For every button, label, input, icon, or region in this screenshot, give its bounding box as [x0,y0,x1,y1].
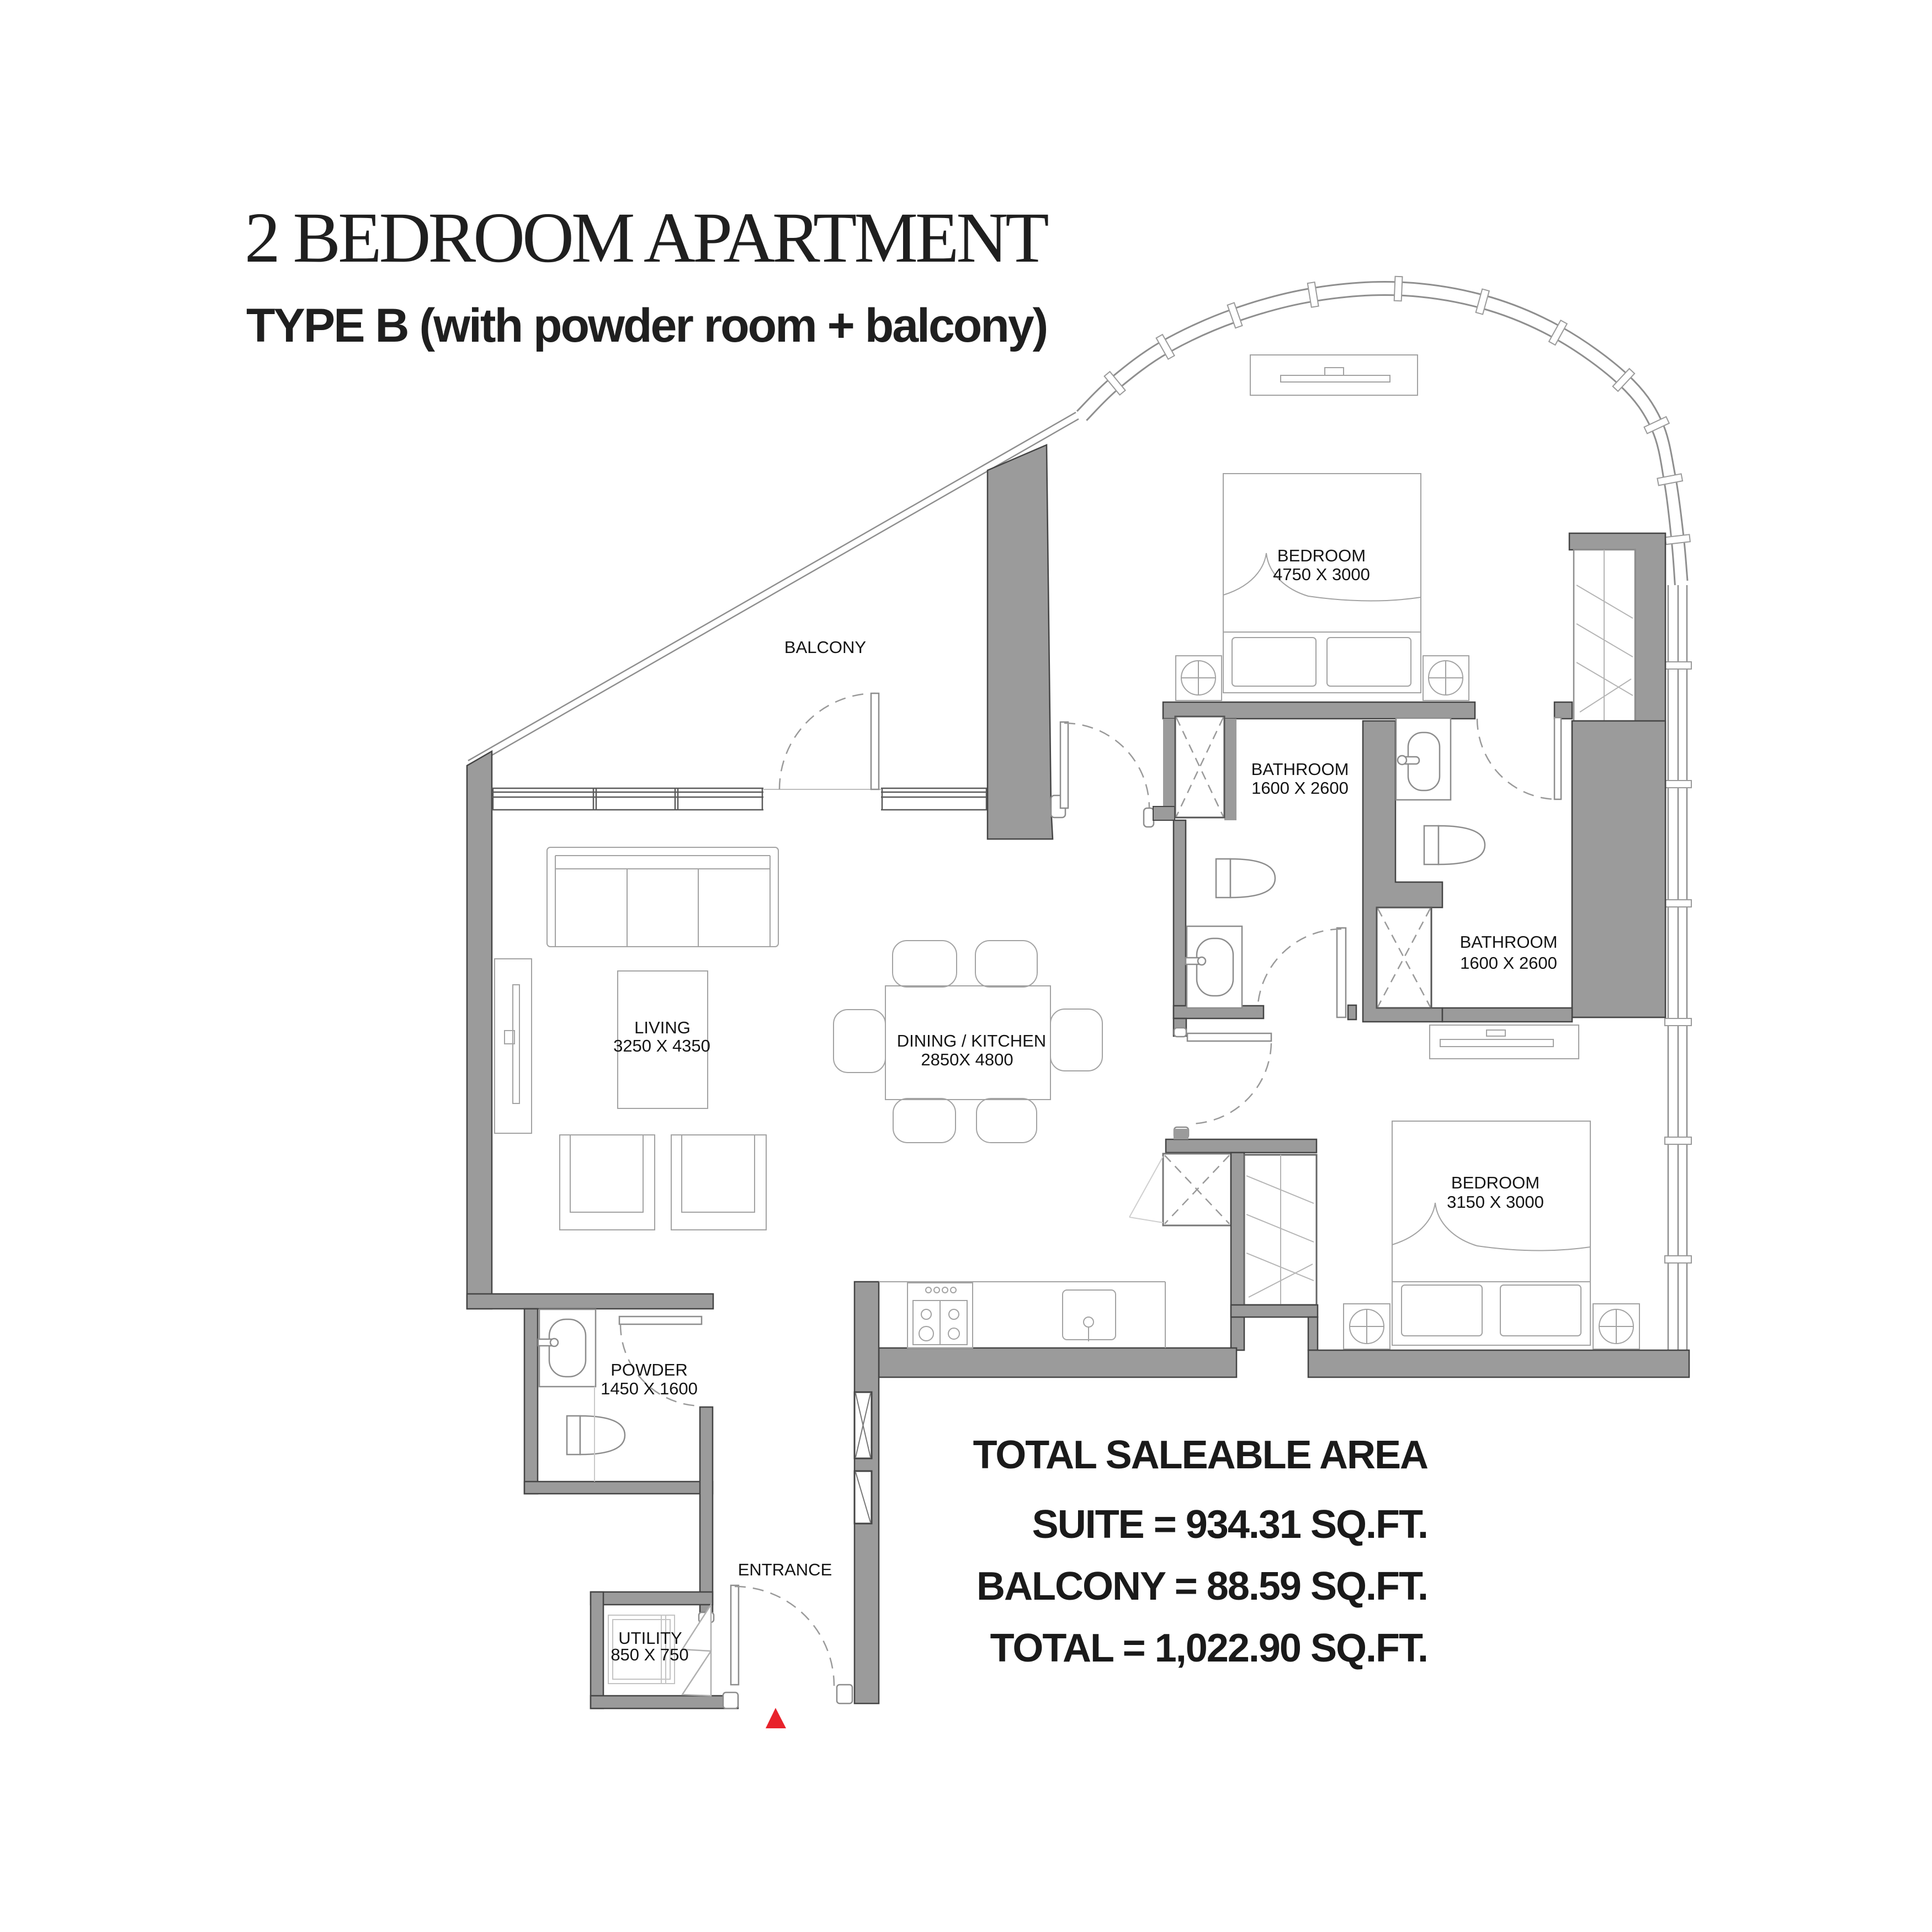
svg-text:ENTRANCE: ENTRANCE [738,1560,832,1579]
svg-text:SUITE = 934.31 SQ.FT.: SUITE = 934.31 SQ.FT. [1032,1503,1427,1547]
svg-text:4750 X 3000: 4750 X 3000 [1273,565,1370,584]
svg-text:2 BEDROOM APARTMENT: 2 BEDROOM APARTMENT [245,198,1048,278]
svg-text:3150 X 3000: 3150 X 3000 [1447,1192,1544,1212]
svg-text:LIVING: LIVING [634,1018,691,1037]
svg-text:BATHROOM: BATHROOM [1251,760,1349,779]
svg-text:BEDROOM: BEDROOM [1277,546,1366,565]
svg-text:BATHROOM: BATHROOM [1460,932,1558,952]
svg-text:TOTAL = 1,022.90 SQ.FT.: TOTAL = 1,022.90 SQ.FT. [990,1626,1427,1670]
svg-text:1600 X 2600: 1600 X 2600 [1251,778,1349,798]
svg-text:POWDER: POWDER [611,1360,688,1379]
svg-text:3250 X 4350: 3250 X 4350 [613,1036,710,1055]
svg-text:BEDROOM: BEDROOM [1451,1173,1540,1192]
svg-text:DINING / KITCHEN: DINING / KITCHEN [897,1031,1046,1050]
svg-text:TYPE B (with powder room + bal: TYPE B (with powder room + balcony) [246,299,1047,352]
svg-text:BALCONY: BALCONY [784,638,866,657]
svg-text:2850X 4800: 2850X 4800 [921,1050,1013,1069]
svg-text:TOTAL SALEABLE AREA: TOTAL SALEABLE AREA [973,1433,1428,1477]
svg-text:850 X 750: 850 X 750 [611,1645,688,1664]
svg-text:1600 X 2600: 1600 X 2600 [1460,953,1557,973]
svg-text:1450 X 1600: 1450 X 1600 [601,1379,698,1398]
svg-text:BALCONY = 88.59 SQ.FT.: BALCONY = 88.59 SQ.FT. [976,1564,1427,1609]
